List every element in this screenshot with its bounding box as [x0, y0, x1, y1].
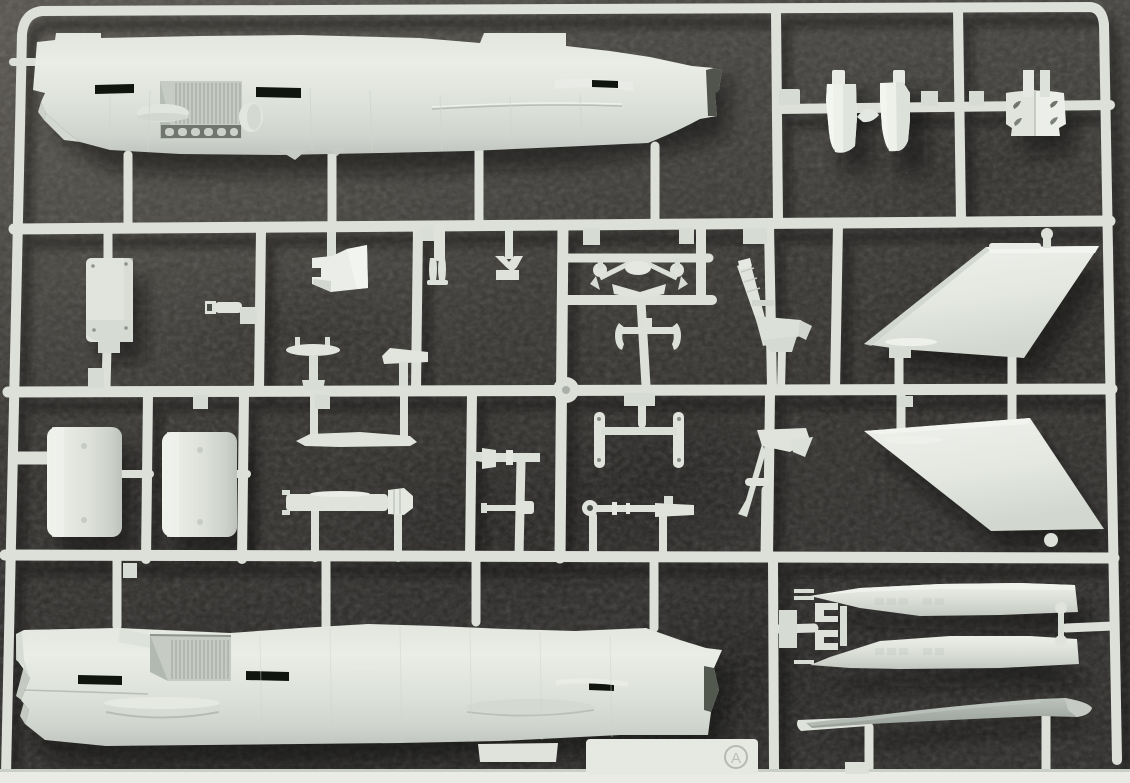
- svg-text:A: A: [731, 750, 741, 767]
